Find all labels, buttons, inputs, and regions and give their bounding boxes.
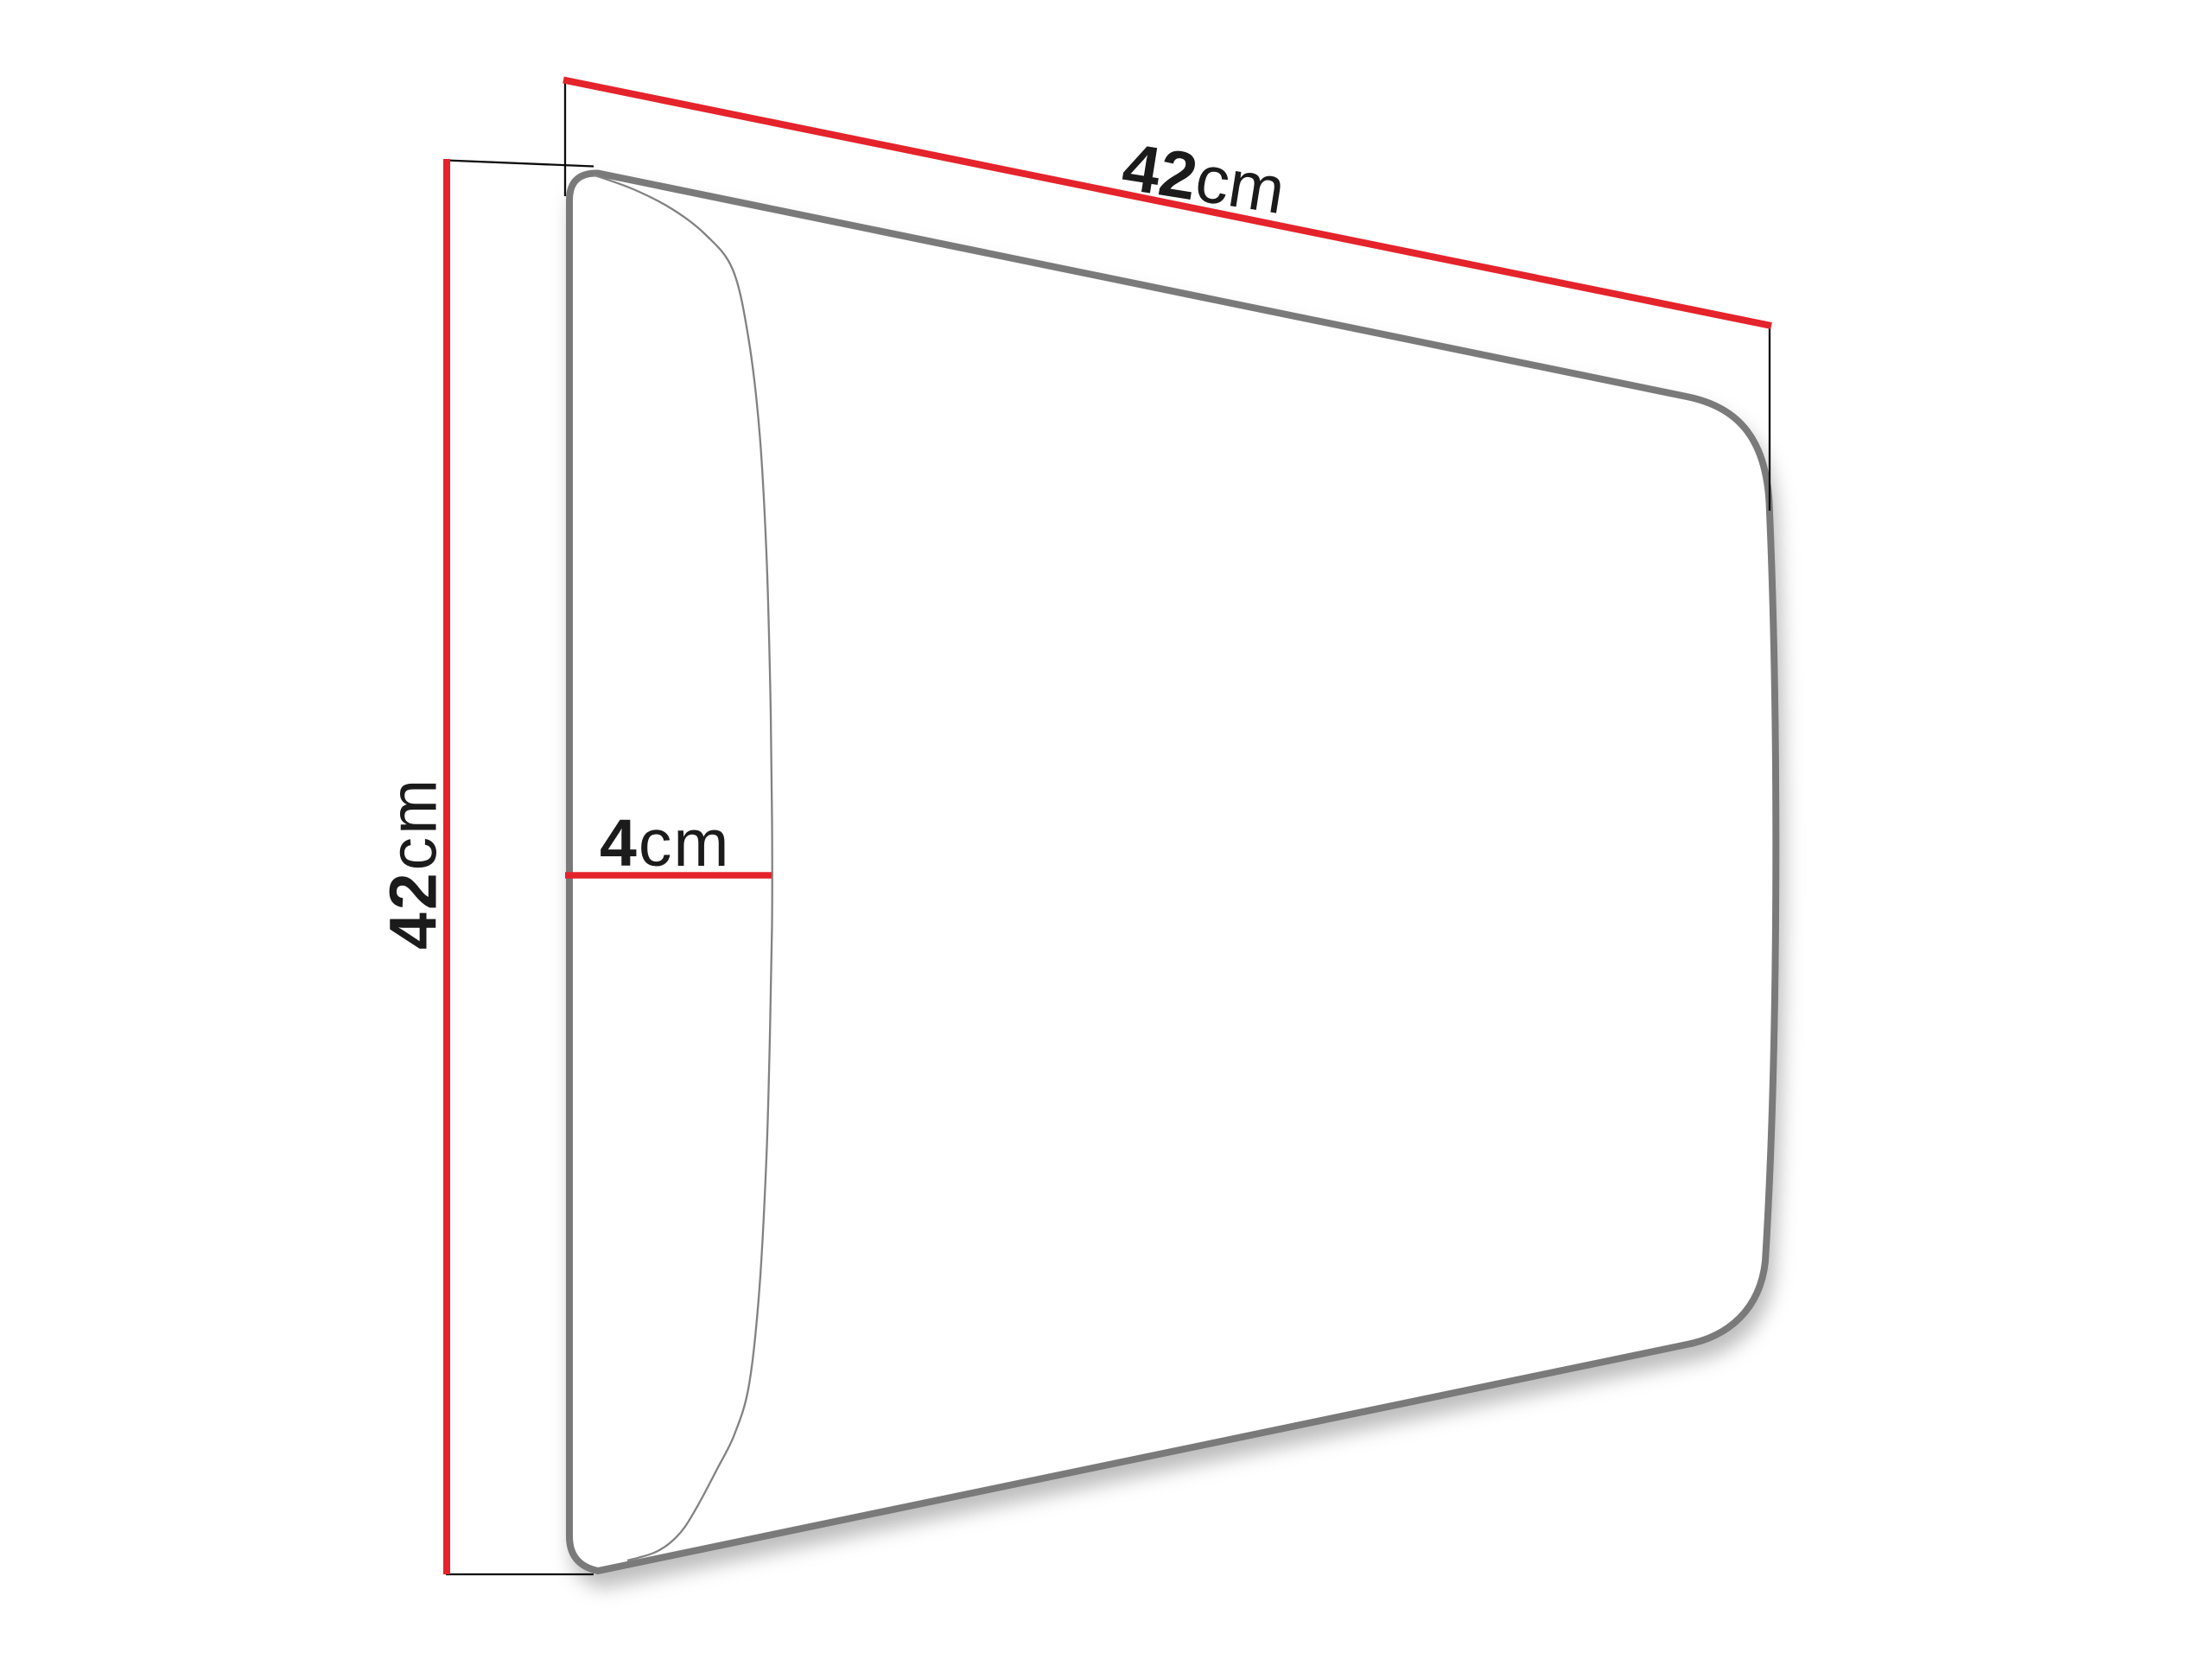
svg-text:42cm: 42cm [1117, 130, 1289, 228]
svg-text:42cm: 42cm [377, 777, 451, 950]
svg-text:4cm: 4cm [600, 806, 730, 880]
